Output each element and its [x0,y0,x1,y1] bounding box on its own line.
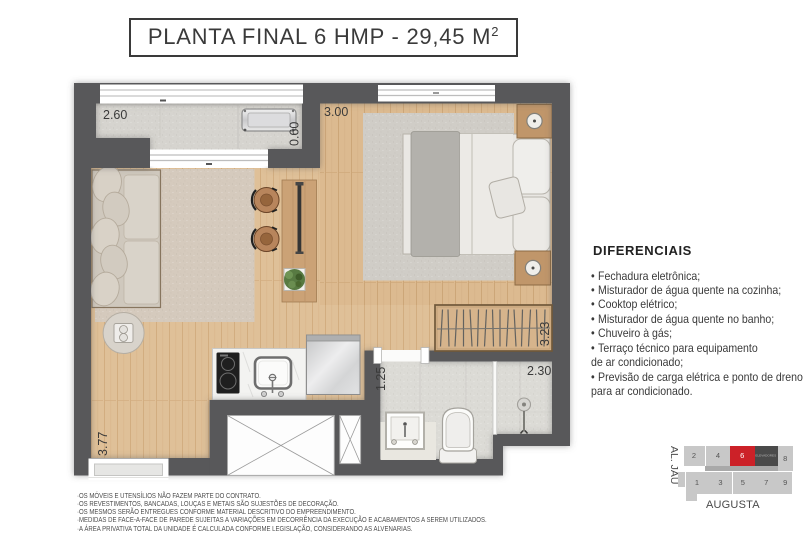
svg-text:3.77: 3.77 [96,432,110,456]
svg-text:3.23: 3.23 [538,322,552,346]
svg-text:1.25: 1.25 [374,367,388,391]
svg-text:3.00: 3.00 [324,105,348,119]
svg-text:2.30: 2.30 [527,364,551,378]
svg-text:0.60: 0.60 [288,122,302,146]
svg-text:2.60: 2.60 [103,108,127,122]
